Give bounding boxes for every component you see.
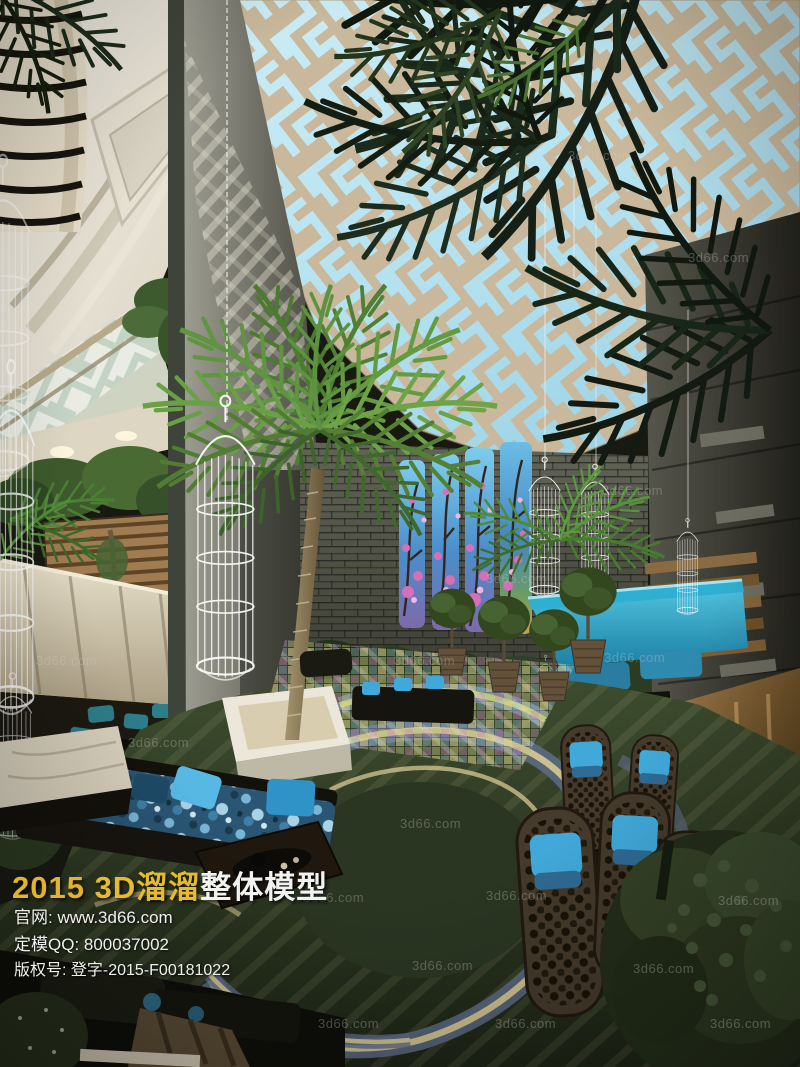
scene-canvas (0, 0, 800, 1067)
atrium-render: 3d66.com 3d66.com 3d66.com 3d66.com 3d66… (0, 0, 800, 1067)
vignette (0, 0, 800, 1067)
